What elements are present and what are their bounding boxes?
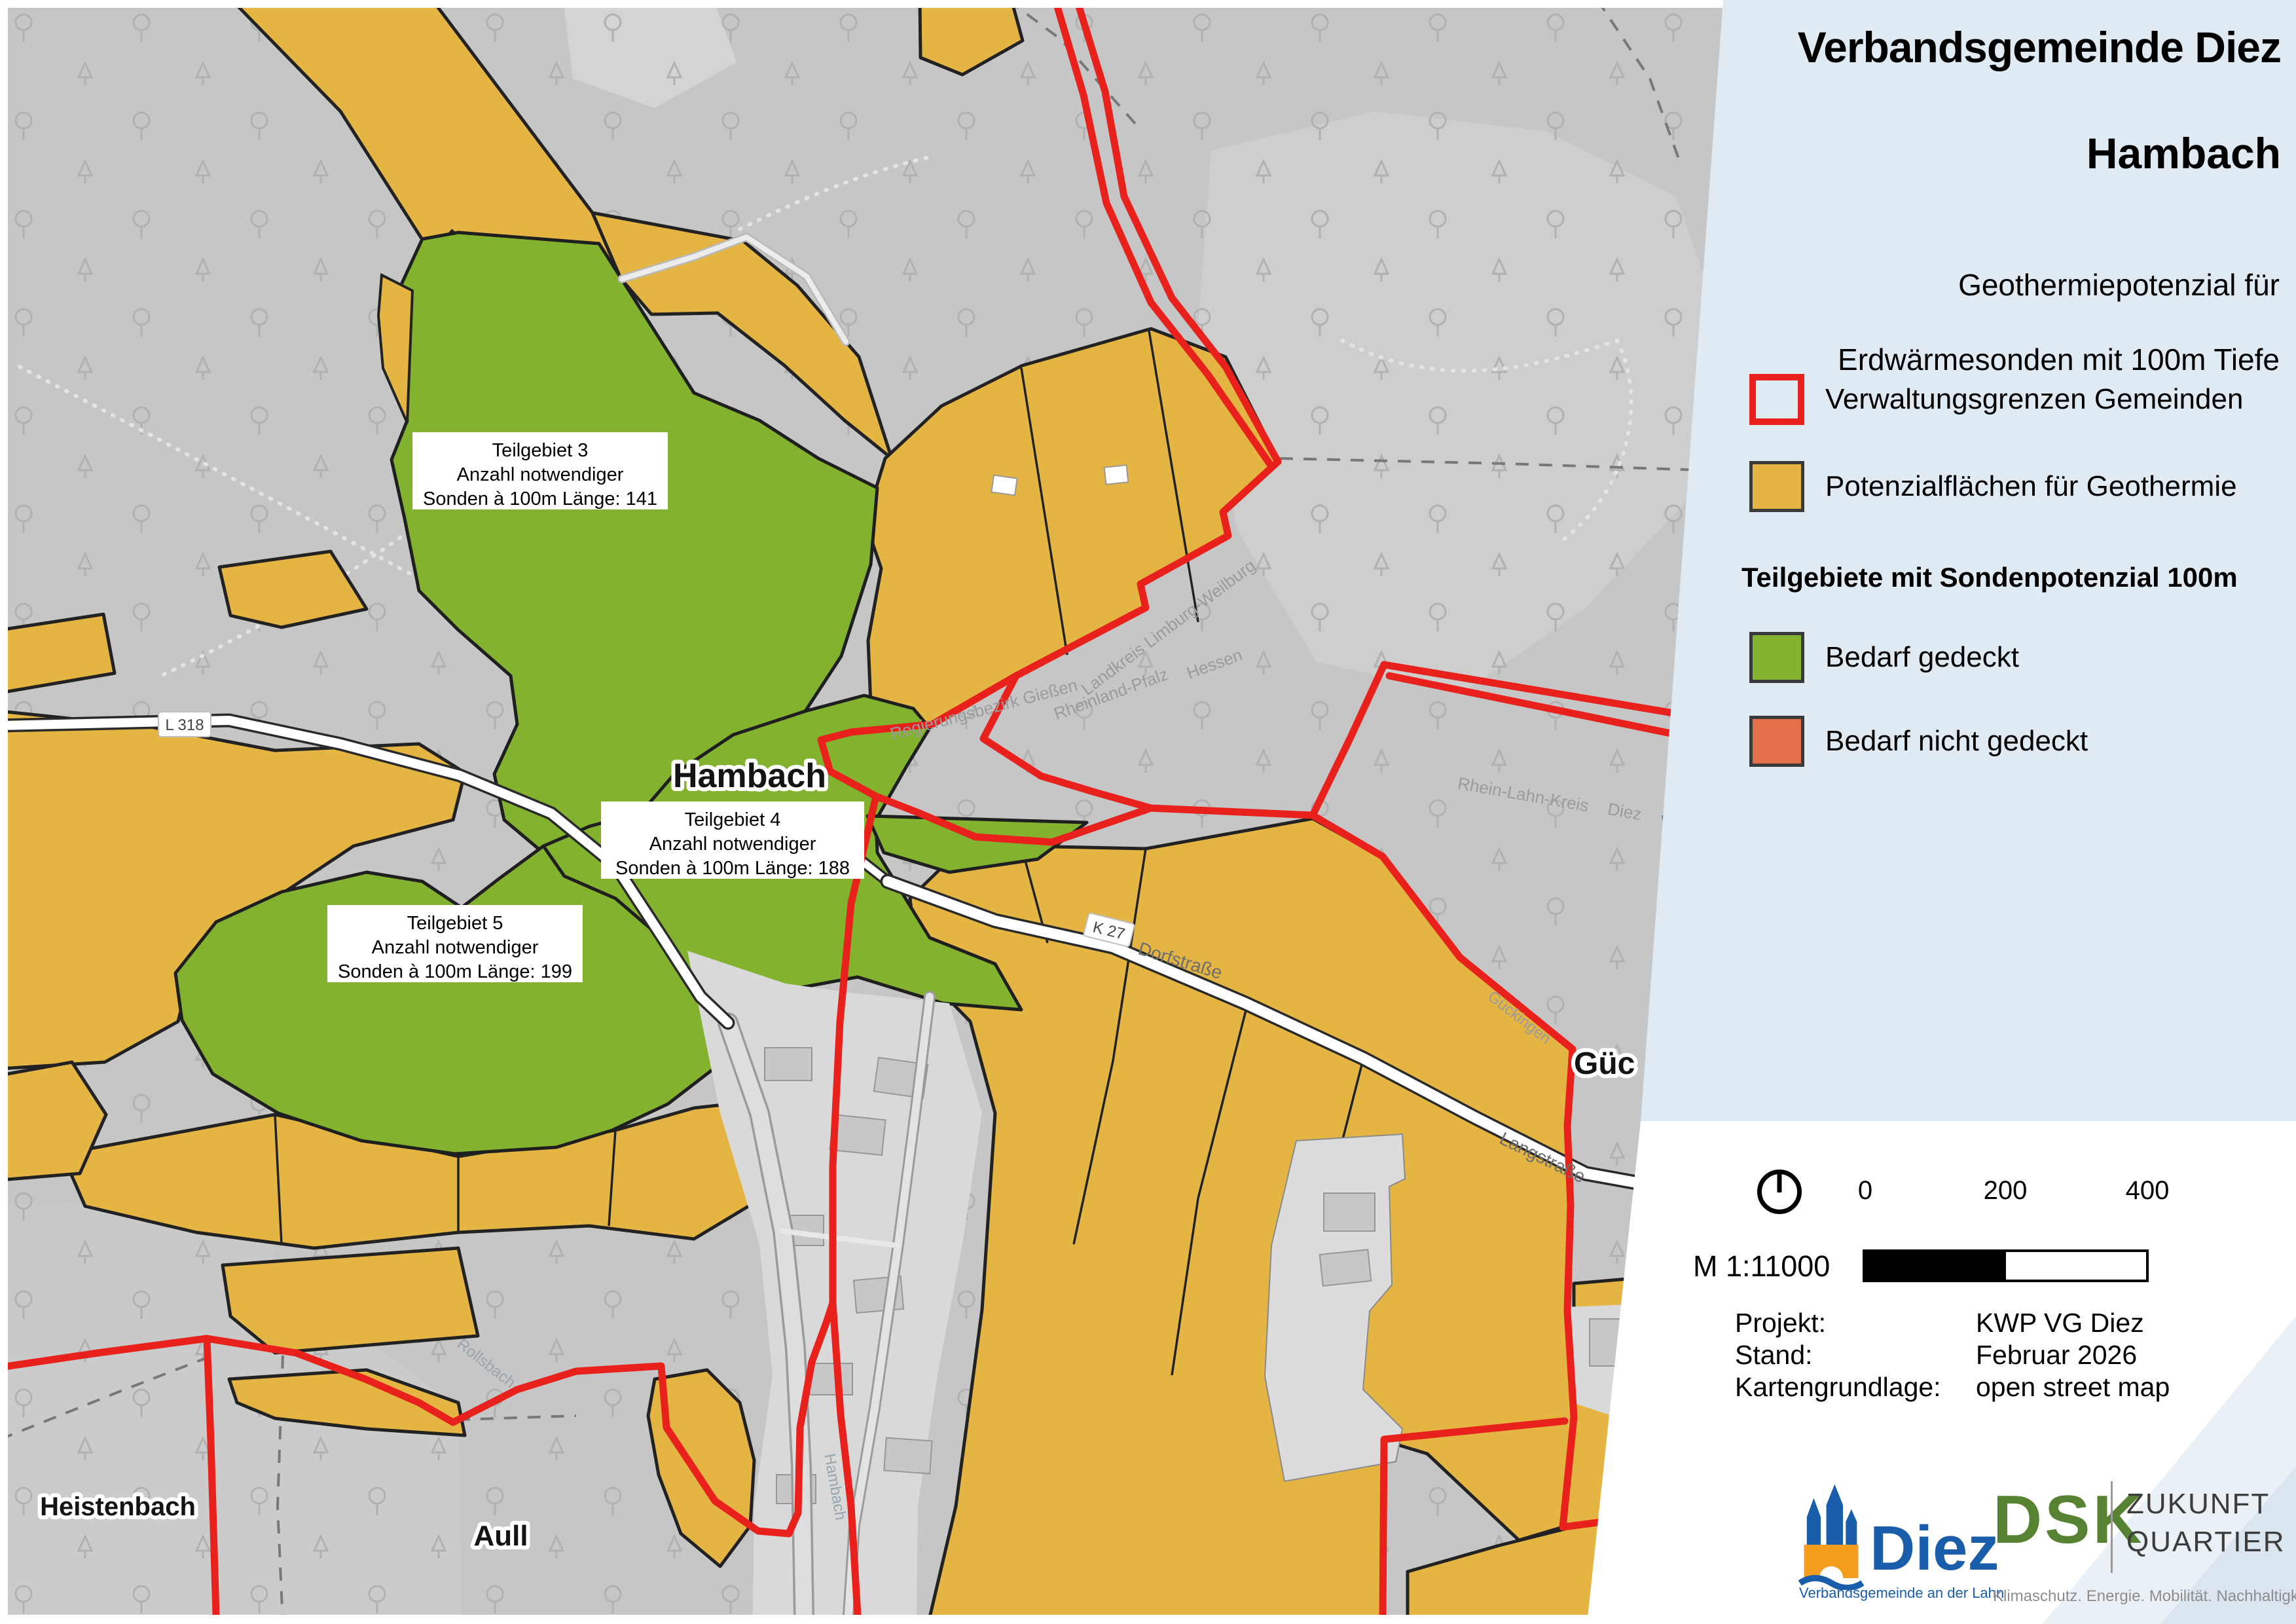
map-subtitle-line1: Geothermiepotenzial für <box>1749 267 2280 303</box>
legend-row-covered: Bedarf gedeckt <box>1749 630 2019 685</box>
legend-swatch-demand-not-covered <box>1749 716 1804 767</box>
area-label-teilgebiet4: Teilgebiet 4 Anzahl notwendiger Sonden à… <box>601 802 864 879</box>
scale-ratio: M 1:11000 <box>1693 1249 1830 1283</box>
street-shield-l318: L 318 <box>158 712 211 737</box>
area-label-line: Teilgebiet 4 <box>685 809 781 830</box>
place-label-heistenbach: Heistenbach <box>40 1492 196 1521</box>
scale-bar-white-segment <box>2006 1252 2147 1280</box>
dsk-logo-name: DSK <box>1993 1481 2145 1559</box>
legend-swatch-admin-boundary <box>1749 374 1804 425</box>
scale-tick-200: 200 <box>1984 1176 2028 1206</box>
area-label-line: Teilgebiet 5 <box>407 913 503 934</box>
basemap-label: Kartengrundlage: <box>1735 1371 1976 1403</box>
area-label-line: Anzahl notwendiger <box>457 464 624 485</box>
map-export-page: L 318 K 27 Dorfstraße Langstraße Landkre… <box>0 0 2296 1624</box>
area-label-teilgebiet3: Teilgebiet 3 Anzahl notwendiger Sonden à… <box>412 432 668 509</box>
scale-tick-400: 400 <box>2126 1176 2170 1206</box>
scale-bar <box>1863 1249 2149 1282</box>
project-value: KWP VG Diez <box>1976 1307 2170 1339</box>
area-label-line: Teilgebiet 3 <box>492 440 589 461</box>
legend-label-not-covered: Bedarf nicht gedeckt <box>1825 725 2088 758</box>
map-title-line1: Verbandsgemeinde Diez <box>1749 22 2281 72</box>
place-label-aull: Aull <box>473 1520 528 1552</box>
area-label-teilgebiet5: Teilgebiet 5 Anzahl notwendiger Sonden à… <box>327 905 583 982</box>
legend-label-covered: Bedarf gedeckt <box>1825 641 2019 674</box>
legend-swatch-potential-area <box>1749 461 1804 512</box>
basemap-value: open street map <box>1976 1371 2170 1403</box>
map-title-line2: Hambach <box>1749 128 2281 178</box>
scale-tick-0: 0 <box>1858 1176 1872 1206</box>
legend-label-potential: Potenzialflächen für Geothermie <box>1825 470 2237 503</box>
dsk-logo-tagline: Klimaschutz. Energie. Mobilität. Nachhal… <box>1993 1587 2296 1606</box>
diez-logo-name: Diez <box>1870 1513 1999 1585</box>
north-arrow-icon <box>1757 1170 1802 1214</box>
area-label-line: Sonden à 100m Länge: 188 <box>615 858 850 879</box>
diez-logo-tagline: Verbandsgemeinde an der Lahn <box>1799 1585 1969 1602</box>
place-label-gueckingen-partial: Güc <box>1574 1046 1635 1081</box>
date-label: Stand: <box>1735 1339 1976 1371</box>
dsk-logo-line1: ZUKUNFT <box>2126 1488 2270 1521</box>
legend-row-not-covered: Bedarf nicht gedeckt <box>1749 714 2088 769</box>
legend-row-potential: Potenzialflächen für Geothermie <box>1749 459 2237 514</box>
legend-swatch-demand-covered <box>1749 632 1804 683</box>
area-label-line: Sonden à 100m Länge: 141 <box>423 489 657 509</box>
area-label-line: Anzahl notwendiger <box>372 937 539 958</box>
project-info: Projekt: KWP VG Diez Stand: Februar 2026… <box>1735 1307 2170 1403</box>
street-label-l318: L 318 <box>165 716 204 734</box>
legend-label-admin: Verwaltungsgrenzen Gemeinden <box>1825 383 2243 416</box>
dsk-logo-line2: QUARTIER <box>2126 1526 2286 1559</box>
scale-bar-black-segment <box>1865 1252 2006 1280</box>
place-label-hambach: Hambach <box>673 757 826 795</box>
area-label-line: Sonden à 100m Länge: 199 <box>338 961 572 982</box>
legend-row-admin: Verwaltungsgrenzen Gemeinden <box>1749 372 2243 427</box>
dsk-logo-divider <box>2111 1481 2113 1573</box>
legend-section-heading: Teilgebiete mit Sondenpotenzial 100m <box>1741 562 2238 593</box>
diez-logo-icon <box>1795 1479 1867 1590</box>
date-value: Februar 2026 <box>1976 1339 2170 1371</box>
project-label: Projekt: <box>1735 1307 1976 1339</box>
area-label-line: Anzahl notwendiger <box>649 834 816 855</box>
